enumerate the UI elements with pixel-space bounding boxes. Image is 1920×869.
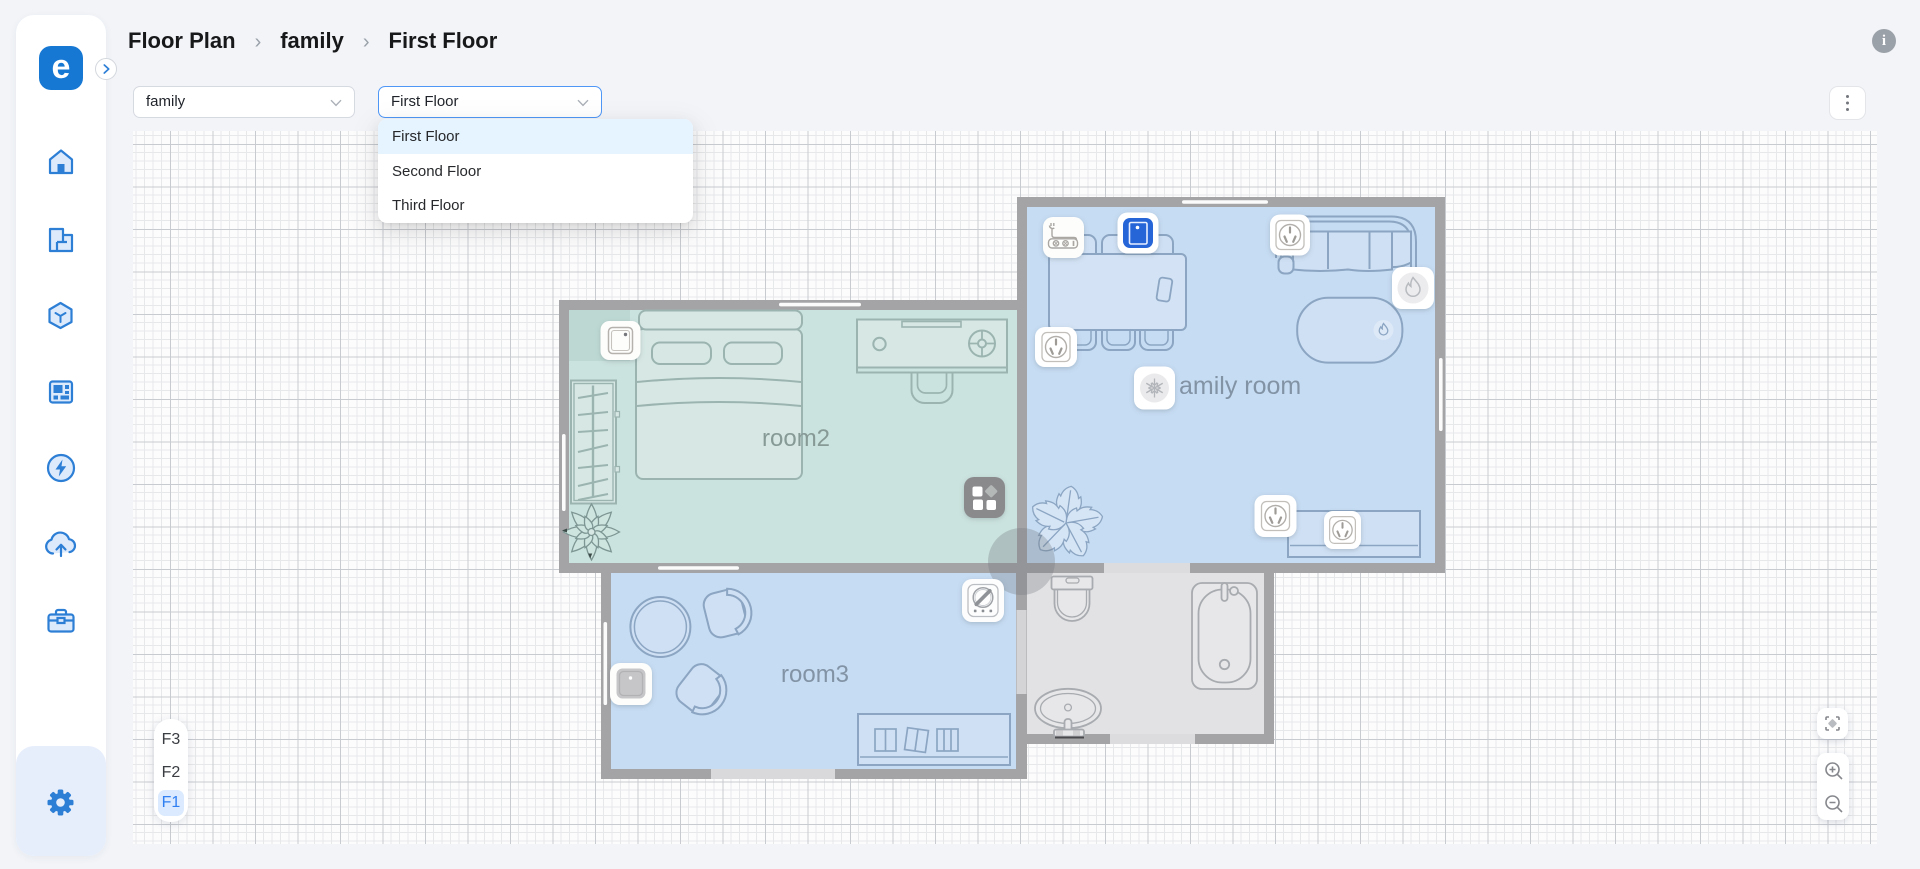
svg-text:amily room: amily room <box>1179 372 1301 400</box>
svg-text:room3: room3 <box>781 661 849 688</box>
svg-text:room2: room2 <box>762 425 830 452</box>
